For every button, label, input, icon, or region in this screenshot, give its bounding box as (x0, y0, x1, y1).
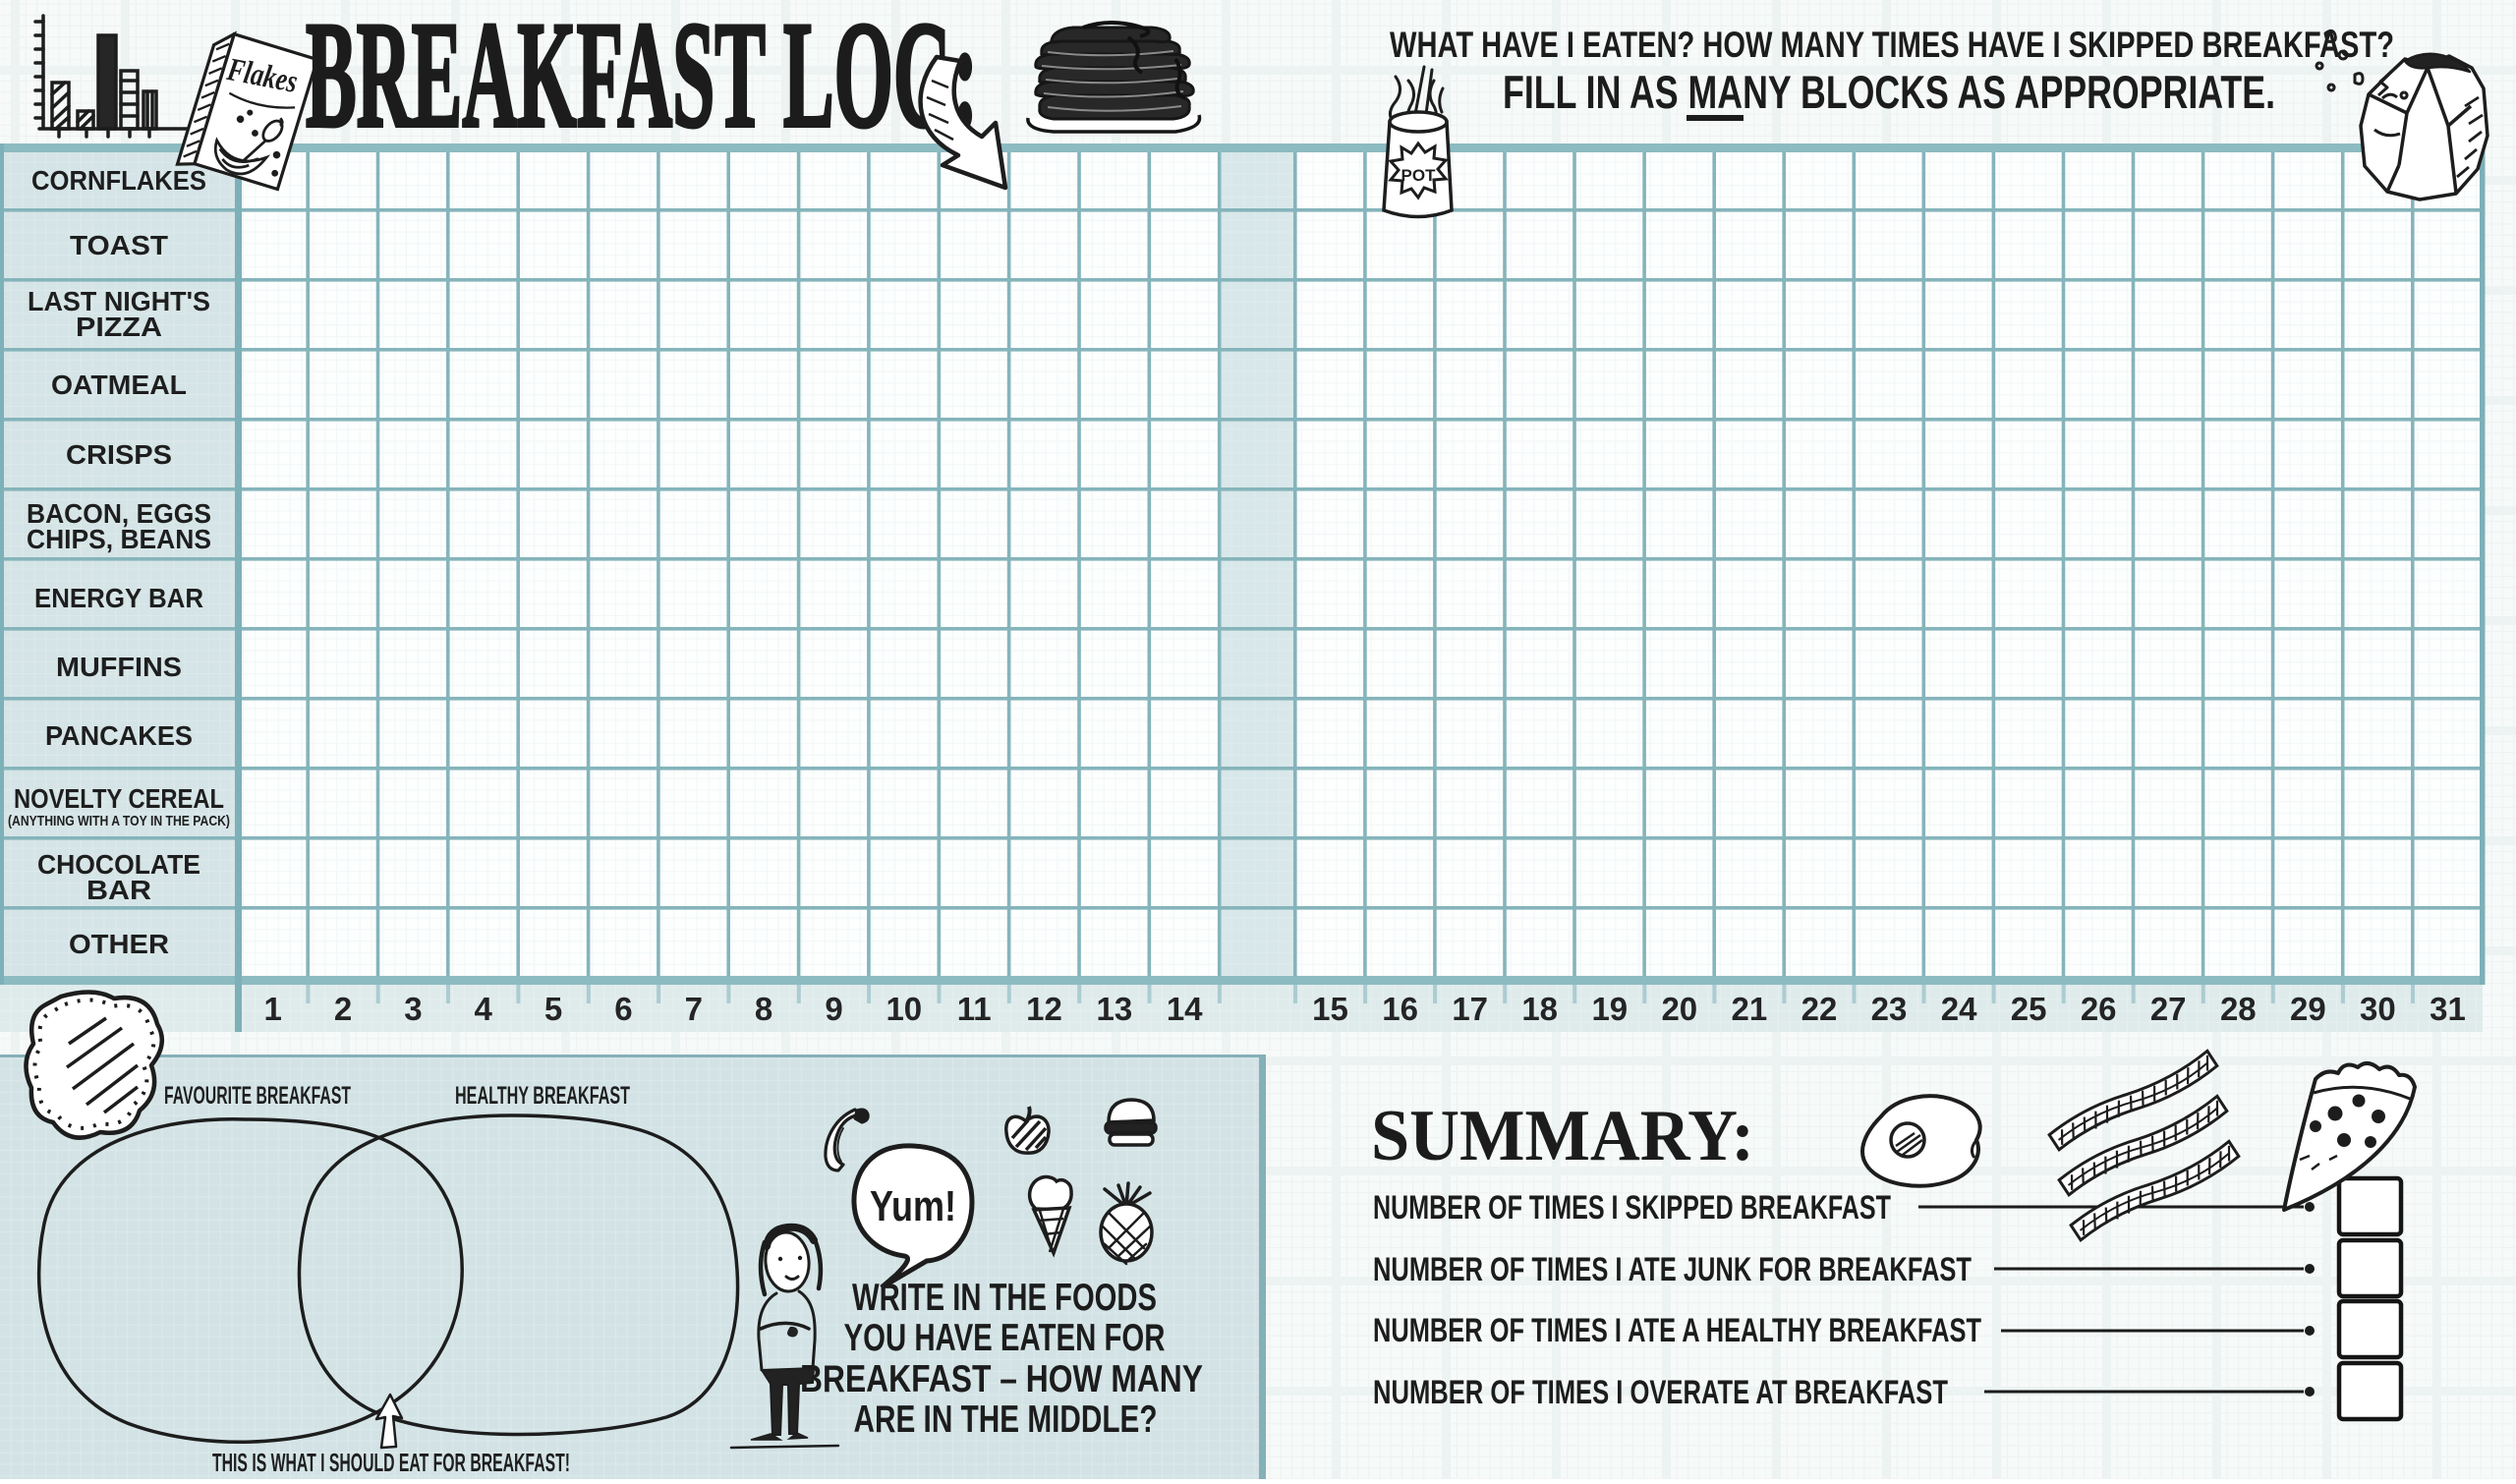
svg-text:22: 22 (1801, 991, 1838, 1027)
svg-text:PANCAKES: PANCAKES (45, 720, 193, 751)
svg-text:Yum!: Yum! (870, 1182, 956, 1230)
svg-text:16: 16 (1382, 991, 1418, 1027)
svg-text:PIZZA: PIZZA (76, 312, 162, 342)
svg-text:NUMBER OF TIMES I ATE JUNK FOR: NUMBER OF TIMES I ATE JUNK FOR BREAKFAST (1373, 1251, 1972, 1288)
svg-text:BAR: BAR (86, 875, 151, 905)
svg-text:17: 17 (1452, 991, 1488, 1027)
svg-text:12: 12 (1026, 991, 1062, 1027)
svg-text:CRISPS: CRISPS (66, 439, 172, 470)
svg-text:25: 25 (2011, 991, 2047, 1027)
svg-text:OTHER: OTHER (69, 929, 169, 959)
svg-text:10: 10 (886, 991, 922, 1027)
svg-text:NUMBER OF TIMES I SKIPPED BREA: NUMBER OF TIMES I SKIPPED BREAKFAST (1373, 1189, 1891, 1227)
svg-text:YOU HAVE EATEN FOR: YOU HAVE EATEN FOR (844, 1317, 1166, 1359)
svg-text:15: 15 (1312, 991, 1348, 1027)
svg-text:11: 11 (957, 991, 992, 1027)
svg-text:WHAT HAVE I EATEN? HOW MANY TI: WHAT HAVE I EATEN? HOW MANY TIMES HAVE I… (1390, 25, 2394, 65)
svg-text:30: 30 (2360, 991, 2396, 1027)
svg-text:5: 5 (544, 991, 562, 1027)
svg-text:26: 26 (2081, 991, 2117, 1027)
svg-text:1: 1 (264, 991, 282, 1027)
svg-text:BREAKFAST – HOW MANY: BREAKFAST – HOW MANY (800, 1358, 1203, 1400)
svg-text:NOVELTY CEREAL: NOVELTY CEREAL (14, 783, 224, 814)
svg-text:13: 13 (1097, 991, 1133, 1027)
svg-text:23: 23 (1871, 991, 1908, 1027)
svg-text:14: 14 (1167, 991, 1203, 1027)
svg-text:NUMBER OF TIMES I OVERATE AT B: NUMBER OF TIMES I OVERATE AT BREAKFAST (1373, 1374, 1948, 1411)
svg-text:CORNFLAKES: CORNFLAKES (31, 165, 206, 196)
svg-text:4: 4 (475, 991, 493, 1027)
svg-text:POT: POT (1401, 166, 1437, 185)
svg-text:ENERGY BAR: ENERGY BAR (34, 583, 203, 613)
svg-text:29: 29 (2290, 991, 2326, 1027)
svg-text:NUMBER OF TIMES I ATE A HEALTH: NUMBER OF TIMES I ATE A HEALTHY BREAKFAS… (1373, 1312, 1981, 1349)
svg-text:28: 28 (2220, 991, 2257, 1027)
svg-text:6: 6 (614, 991, 632, 1027)
svg-text:7: 7 (685, 991, 703, 1027)
svg-text:MUFFINS: MUFFINS (56, 652, 182, 682)
svg-text:20: 20 (1661, 991, 1697, 1027)
svg-text:21: 21 (1732, 991, 1768, 1027)
svg-text:2: 2 (334, 991, 352, 1027)
svg-text:BREAKFAST LOG:: BREAKFAST LOG: (306, 0, 978, 159)
svg-text:ARE IN THE MIDDLE?: ARE IN THE MIDDLE? (854, 1398, 1158, 1441)
svg-text:WRITE IN THE FOODS: WRITE IN THE FOODS (852, 1277, 1157, 1319)
svg-text:THIS IS WHAT I SHOULD EAT FOR: THIS IS WHAT I SHOULD EAT FOR BREAKFAST! (212, 1448, 570, 1477)
svg-text:18: 18 (1521, 991, 1558, 1027)
svg-text:FAVOURITE BREAKFAST: FAVOURITE BREAKFAST (164, 1082, 351, 1110)
svg-text:CHIPS, BEANS: CHIPS, BEANS (27, 524, 211, 554)
svg-text:31: 31 (2430, 991, 2466, 1027)
svg-text:27: 27 (2150, 991, 2187, 1027)
svg-text:24: 24 (1941, 991, 1977, 1027)
svg-text:3: 3 (404, 991, 422, 1027)
svg-text:(ANYTHING WITH A TOY IN THE PA: (ANYTHING WITH A TOY IN THE PACK) (8, 813, 230, 829)
svg-text:HEALTHY BREAKFAST: HEALTHY BREAKFAST (455, 1082, 630, 1110)
svg-text:8: 8 (755, 991, 772, 1027)
svg-text:OATMEAL: OATMEAL (51, 370, 187, 400)
svg-text:19: 19 (1591, 991, 1628, 1027)
svg-text:TOAST: TOAST (70, 230, 168, 260)
svg-text:SUMMARY:: SUMMARY: (1371, 1096, 1754, 1176)
svg-text:FILL IN AS MANY BLOCKS AS APPR: FILL IN AS MANY BLOCKS AS APPROPRIATE. (1503, 66, 2275, 118)
svg-text:9: 9 (825, 991, 842, 1027)
